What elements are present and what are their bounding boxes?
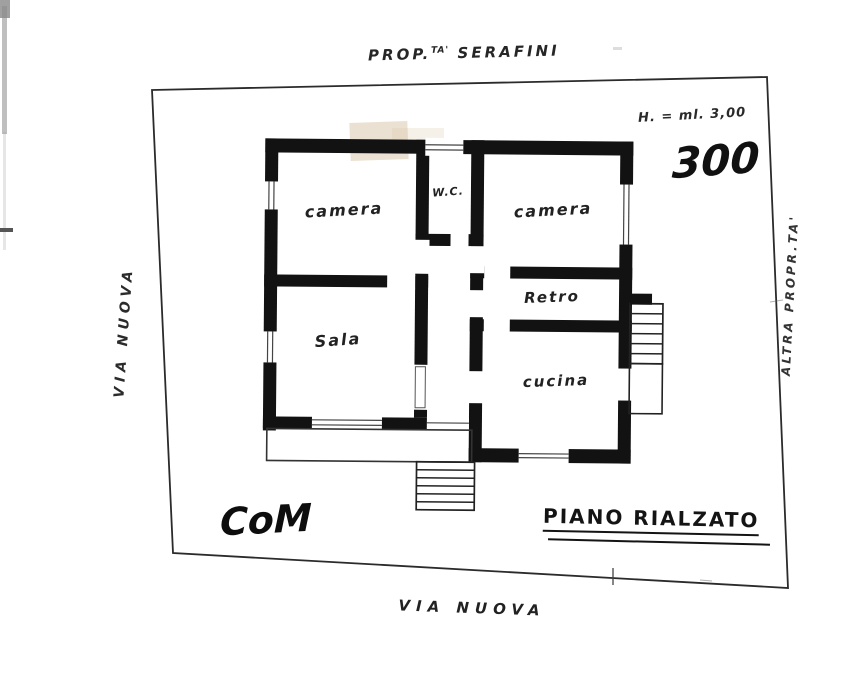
door-gap-cucina-wall	[484, 318, 510, 332]
room-label-retro: Retro	[524, 287, 580, 307]
window-left-camera	[263, 181, 280, 209]
room-label-cucina: cucina	[523, 371, 590, 391]
threshold-line	[312, 420, 382, 421]
room-label-wc: W.C.	[432, 184, 464, 199]
room-label-sala: Sala	[314, 329, 362, 351]
scan-dot	[613, 47, 622, 50]
door-corridor-exit	[427, 417, 469, 431]
window-left-sala	[261, 331, 278, 362]
balcony	[267, 428, 472, 462]
prop-prefix: PROP.	[368, 45, 432, 65]
prop-superscript: TA'	[431, 45, 449, 55]
door-wc	[450, 233, 468, 247]
stairs-right	[629, 294, 663, 414]
door-retro	[469, 290, 484, 317]
threshold-line	[312, 425, 382, 426]
scan-streak	[3, 132, 6, 250]
window-line	[628, 185, 629, 245]
stairs-bottom	[416, 462, 474, 511]
stairs-wall-stub	[630, 294, 652, 305]
door-camera-right	[469, 246, 484, 273]
door-camera-sala	[387, 274, 415, 288]
scanned-floor-plan: PROP.TA' SERAFINI H. = ml. 3,00 300 VIA …	[0, 0, 866, 677]
door-gap-retro-wall	[484, 265, 510, 279]
window-top-wc	[425, 138, 463, 156]
window-right-camera	[618, 184, 634, 244]
stairs-landing	[629, 364, 662, 414]
plan-title: PIANO RIALZATO	[543, 504, 760, 537]
scan-streak	[2, 6, 7, 134]
signature: CoM	[220, 496, 312, 545]
prop-name: SERAFINI	[457, 41, 560, 62]
door-cucina	[468, 371, 483, 403]
scan-dash	[0, 228, 13, 232]
door-camera-left	[414, 240, 429, 274]
window-line	[623, 185, 624, 245]
window-bottom-cucina	[519, 448, 569, 464]
area-number: 300	[671, 133, 760, 188]
boundary-tick	[700, 580, 712, 581]
